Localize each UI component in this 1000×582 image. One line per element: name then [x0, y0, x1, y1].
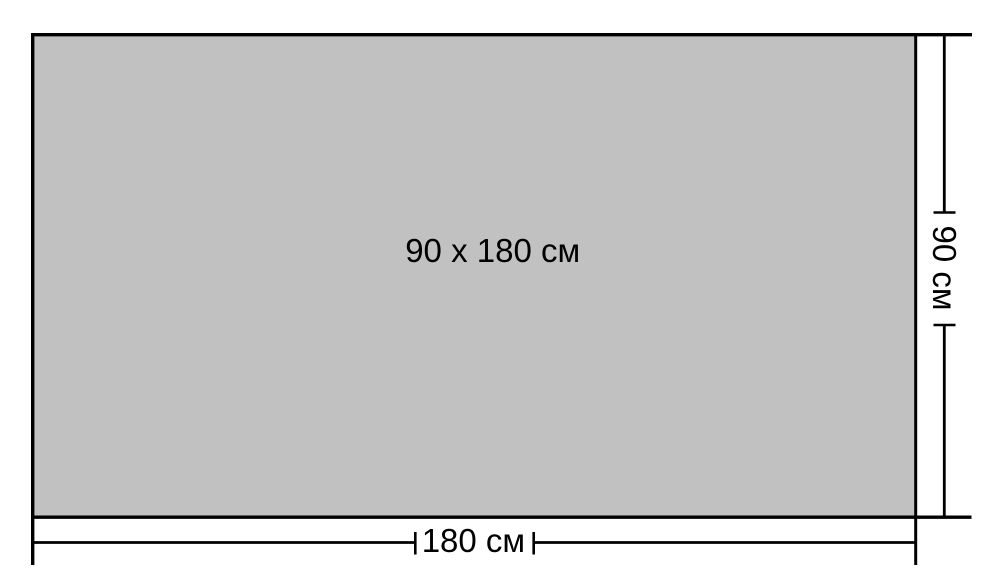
svg-text:90 x 180 см: 90 x 180 см [405, 232, 580, 269]
svg-text:90 см: 90 см [926, 225, 963, 310]
svg-text:180 см: 180 см [422, 522, 525, 559]
